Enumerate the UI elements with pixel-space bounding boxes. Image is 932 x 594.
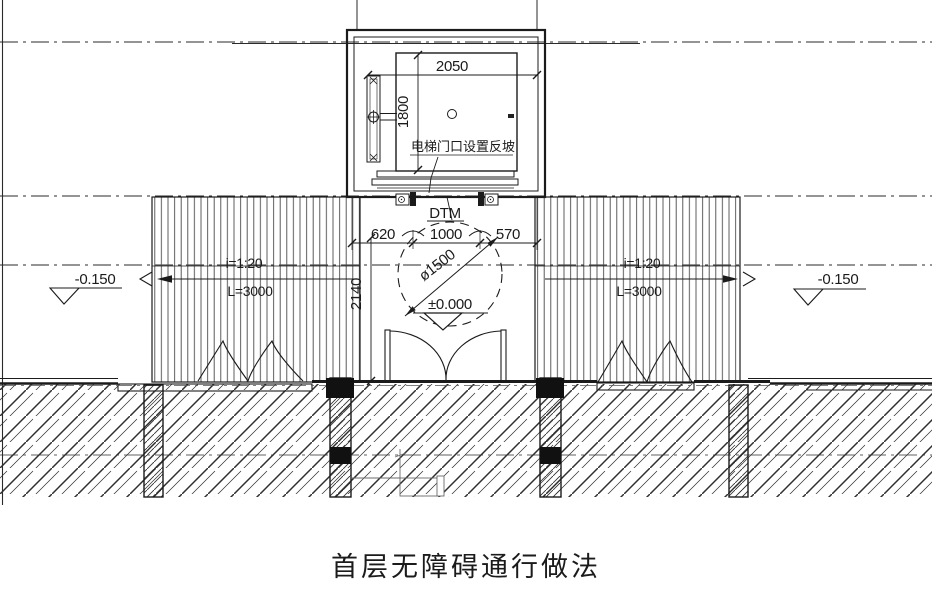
architectural-drawing: 2050 1800 电梯门口设置反坡 DTM 620 1000 570 2140 — [0, 0, 932, 594]
elevator-door-sill — [372, 171, 518, 188]
dim-1000: 1000 — [430, 226, 462, 243]
datum-text: ±0.000 — [428, 296, 472, 313]
cab-center-mark — [448, 110, 457, 119]
ramp-left-length: L=3000 — [227, 283, 273, 299]
ramp-right-length: L=3000 — [616, 283, 662, 299]
entrance-doors — [385, 330, 506, 382]
level-marker-left: -0.150 — [50, 271, 122, 304]
level-right-text: -0.150 — [818, 271, 859, 288]
door-note-text: 电梯门口设置反坡 — [411, 139, 515, 154]
cab-right-wall-mark — [508, 114, 514, 118]
level-marker-right: -0.150 — [794, 271, 866, 305]
ramp-right-slope: i=1:20 — [624, 255, 661, 271]
dtm-text: DTM — [429, 205, 461, 222]
dim-circle: ø1500 — [416, 246, 459, 285]
section-wall-band — [0, 378, 932, 497]
cad-canvas: 2050 1800 电梯门口设置反坡 DTM 620 1000 570 2140 — [0, 0, 932, 594]
dtm-label: DTM — [427, 197, 464, 222]
dim-620: 620 — [371, 226, 395, 243]
dim-570: 570 — [496, 226, 520, 243]
dim-2050: 2050 — [436, 58, 468, 75]
level-left-text: -0.150 — [75, 271, 116, 288]
ramp-left-slope: i=1:20 — [226, 255, 263, 271]
drawing-title: 首层无障碍通行做法 — [331, 552, 601, 582]
dim-1800: 1800 — [395, 96, 412, 128]
dim-2140: 2140 — [348, 278, 365, 310]
elevator-shaft — [347, 30, 545, 206]
datum-level-marker: ±0.000 — [413, 296, 488, 330]
elevator-rail — [367, 76, 397, 162]
